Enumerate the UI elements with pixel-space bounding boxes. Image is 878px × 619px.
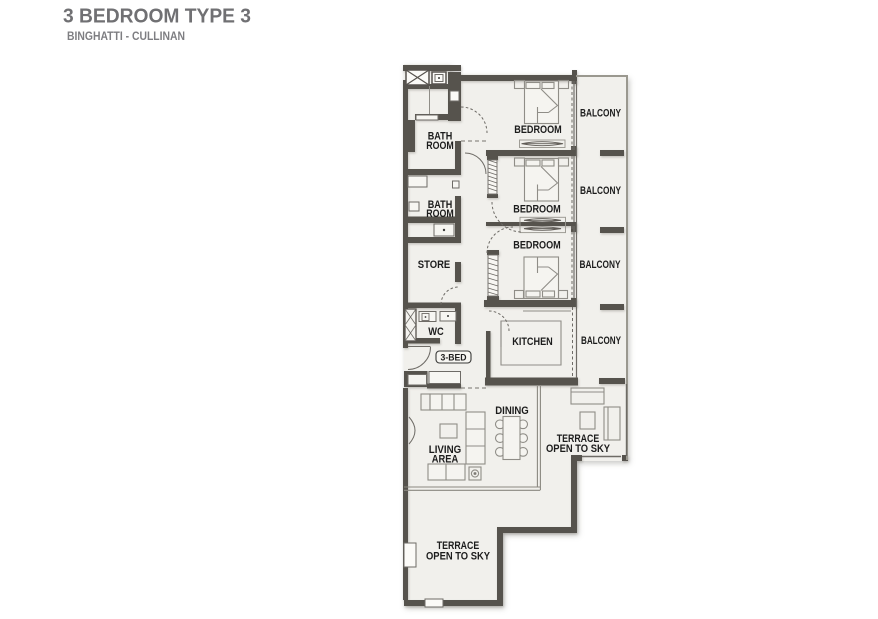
- svg-text:BALCONY: BALCONY: [580, 185, 621, 197]
- svg-text:OPEN TO SKY: OPEN TO SKY: [546, 443, 611, 455]
- svg-text:BALCONY: BALCONY: [581, 335, 621, 347]
- svg-text:BEDROOM: BEDROOM: [513, 239, 561, 251]
- svg-text:3 BEDROOM TYPE 3: 3 BEDROOM TYPE 3: [63, 6, 251, 28]
- svg-text:ROOM: ROOM: [426, 208, 454, 220]
- svg-text:STORE: STORE: [418, 259, 451, 271]
- svg-text:ROOM: ROOM: [426, 140, 454, 152]
- svg-text:BINGHATTI - CULLINAN: BINGHATTI - CULLINAN: [67, 29, 185, 43]
- svg-text:OPEN TO SKY: OPEN TO SKY: [426, 551, 491, 563]
- svg-text:3-BED: 3-BED: [441, 352, 467, 362]
- svg-text:BEDROOM: BEDROOM: [513, 203, 561, 215]
- svg-text:KITCHEN: KITCHEN: [512, 336, 553, 348]
- svg-text:BALCONY: BALCONY: [580, 108, 621, 120]
- svg-text:AREA: AREA: [432, 453, 459, 465]
- svg-text:BEDROOM: BEDROOM: [514, 124, 562, 136]
- svg-text:DINING: DINING: [495, 405, 529, 417]
- svg-text:WC: WC: [428, 326, 444, 338]
- svg-text:BALCONY: BALCONY: [580, 259, 621, 271]
